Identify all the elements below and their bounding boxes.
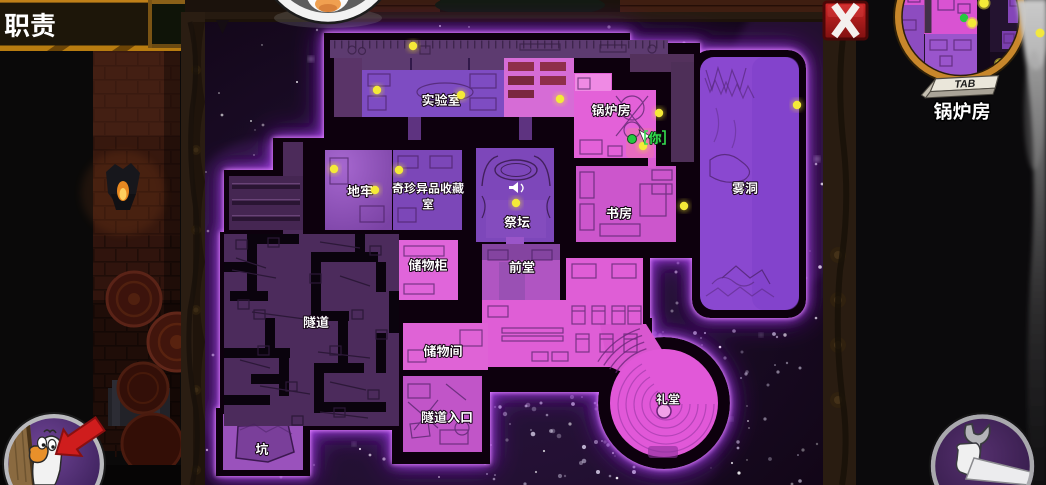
svg-text:TAB: TAB [954,78,976,91]
